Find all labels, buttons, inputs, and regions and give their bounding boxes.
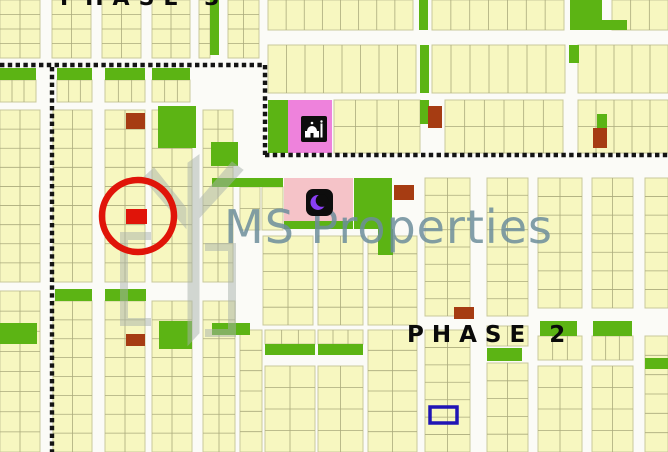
plot-block <box>268 0 413 30</box>
green-plot <box>487 348 522 361</box>
brown-plot <box>593 128 607 148</box>
green-plot <box>570 0 602 30</box>
plot-block <box>578 100 668 153</box>
green-plot <box>420 100 429 124</box>
brown-plot <box>126 113 145 129</box>
green-plot <box>0 68 36 80</box>
plot-map: MS Properties PHASE 3 PHASE 2 <box>0 0 668 452</box>
plot-block <box>0 80 36 102</box>
plot-block <box>240 330 262 452</box>
green-plot <box>105 68 145 80</box>
green-plot <box>211 142 238 166</box>
green-plot <box>318 344 363 355</box>
green-plot <box>419 0 428 30</box>
plot-block <box>0 110 40 282</box>
plot-block <box>645 336 668 452</box>
plot-block <box>368 330 417 452</box>
plot-block <box>318 366 363 452</box>
brown-plot <box>394 185 414 200</box>
green-plot <box>159 321 192 349</box>
plot-block <box>268 45 416 93</box>
plot-block <box>105 80 145 102</box>
green-plot <box>602 20 627 30</box>
plot-block <box>592 178 633 308</box>
plot-block <box>334 100 420 153</box>
plot-block <box>645 178 668 308</box>
plot-block <box>265 366 315 452</box>
plot-block <box>592 366 633 452</box>
green-plot <box>645 358 668 369</box>
plot-block <box>53 110 92 282</box>
plot-block <box>592 336 633 360</box>
brown-plot <box>428 106 442 128</box>
phase-top-label: PHASE 3 <box>60 0 228 11</box>
map-canvas: MS Properties PHASE 3 PHASE 2 <box>0 0 668 452</box>
plot-block <box>265 330 315 344</box>
green-plot <box>593 321 632 336</box>
green-plot <box>597 114 607 128</box>
green-plot <box>152 68 190 80</box>
brown-plot <box>126 334 145 346</box>
green-plot <box>569 45 579 63</box>
plot-block <box>318 330 363 344</box>
plot-block <box>578 45 668 93</box>
green-plot <box>265 344 315 355</box>
green-plot <box>268 100 288 153</box>
green-plot <box>0 323 37 344</box>
plot-block <box>0 291 40 452</box>
plot-block <box>228 0 259 58</box>
green-plot <box>158 106 196 148</box>
crescent-moon-icon <box>306 189 333 216</box>
green-plot <box>420 45 429 93</box>
plot-block <box>432 45 565 93</box>
plot-block <box>432 0 564 30</box>
plot-block <box>53 301 92 452</box>
brown-plot <box>454 307 474 319</box>
green-plot <box>57 68 92 80</box>
plot-block <box>57 80 92 102</box>
phase2-label: PHASE 2 <box>407 322 573 348</box>
plot-block <box>538 366 582 452</box>
green-plot <box>55 289 92 301</box>
watermark-text: MS Properties <box>224 200 553 254</box>
plot-block <box>152 80 190 102</box>
plot-block <box>425 330 470 452</box>
plot-block <box>0 0 40 58</box>
plot-block <box>487 363 528 452</box>
plot-block <box>445 100 563 153</box>
highlighted-plot[interactable] <box>126 209 147 224</box>
mosque-icon <box>301 116 327 142</box>
